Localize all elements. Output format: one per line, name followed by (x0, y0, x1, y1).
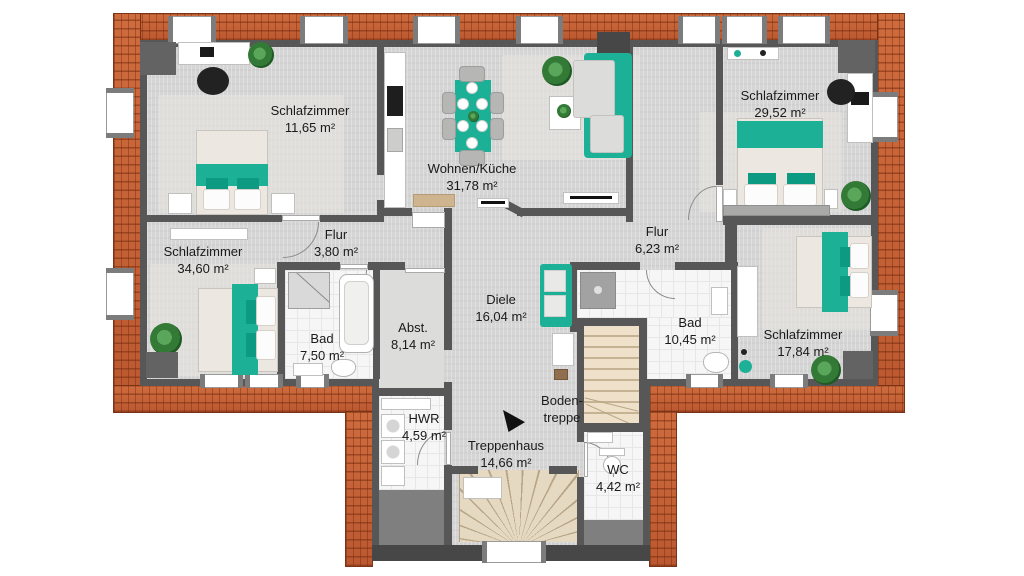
wall-stair-stub-right (549, 466, 577, 474)
room-label-flur-links: Flur 3,80 m² (314, 226, 358, 260)
bed-pillow (783, 184, 817, 206)
window (686, 374, 723, 388)
room-area: 17,84 m² (764, 343, 843, 360)
bed-pillow (256, 330, 276, 360)
room-label-bad-rechts: Bad 10,45 m² (664, 314, 715, 348)
dining-chair (490, 92, 504, 114)
wall-wohnen-diele-b (517, 208, 633, 216)
bed-blanket (822, 232, 848, 312)
plate-icon (476, 98, 488, 110)
kitchen-sink (387, 128, 403, 152)
dresser (723, 205, 830, 216)
room-label-treppenhaus: Treppenhaus 14,66 m² (468, 437, 544, 471)
dining-chair (459, 66, 485, 82)
wall-bed34-right (277, 262, 285, 379)
room-label-abstellraum: Abst. 8,14 m² (391, 319, 435, 353)
closet (838, 40, 875, 73)
wall-flur-bad-a (285, 262, 340, 270)
wall-diele-left-a (444, 208, 452, 350)
window (245, 374, 283, 388)
room-label-schlafzimmer-rechts: Schlafzimmer 17,84 m² (764, 326, 843, 360)
wall-bodentreppe-right (639, 318, 647, 432)
bed-pillow (744, 184, 778, 206)
wall-wohnen-diele-a (384, 208, 412, 216)
wall-kitchen-a (377, 47, 384, 175)
room-area: 8,14 m² (391, 336, 435, 353)
shower-head-icon (594, 286, 602, 294)
wall-bedtl-bottom-a (147, 215, 282, 222)
closet (140, 42, 176, 75)
tv-icon (570, 196, 612, 199)
plant-icon (557, 104, 571, 118)
stair-landing (463, 477, 502, 499)
wall-trepp-wc-b (577, 477, 584, 545)
room-area: 7,50 m² (300, 347, 344, 364)
window (296, 374, 329, 388)
window (413, 16, 460, 44)
door-leaf (405, 268, 445, 273)
floor-plan: Schlafzimmer 11,65 m² Wohnen/Küche 31,78… (0, 0, 1024, 576)
room-area: 34,60 m² (164, 260, 243, 277)
room-label-diele: Diele 16,04 m² (475, 291, 526, 325)
bench-cushion (544, 295, 566, 317)
room-label-bodentreppe: Boden- treppe (541, 392, 583, 426)
bathroom-sink (711, 287, 728, 315)
wc-sink (587, 432, 613, 443)
room-name: Flur (314, 226, 358, 243)
room-name: Bad (664, 314, 715, 331)
window (106, 268, 134, 320)
plate-icon (476, 120, 488, 132)
chimney (597, 32, 630, 53)
door-leaf (716, 186, 723, 222)
window (870, 92, 898, 142)
plant-icon (248, 42, 274, 68)
wall-bodentreppe-top (584, 318, 647, 326)
roof-band-left-wing-bottom (114, 386, 372, 412)
room-name: Abst. (391, 319, 435, 336)
plate-icon (457, 120, 469, 132)
window (678, 16, 720, 44)
wall-diele-left-c (444, 465, 452, 545)
roof-band-right-wing-bottom (650, 386, 904, 412)
plant-icon (150, 323, 182, 355)
window (870, 290, 898, 336)
office-chair (197, 67, 229, 95)
wall-tower-left (372, 379, 379, 553)
roof-band-tower-left (346, 412, 372, 566)
wall-bedtl-bottom-b (320, 215, 384, 222)
shower (288, 272, 330, 309)
bed-pillow (256, 296, 276, 326)
hwr-counter (381, 398, 431, 410)
window (722, 16, 767, 44)
wall-wc-top (584, 423, 643, 430)
bed-pillow (203, 189, 230, 210)
sofa-cushions (573, 60, 615, 118)
sofa-cushions (590, 115, 624, 153)
entry-door (482, 541, 546, 563)
room-label-wc: WC 4,42 m² (596, 461, 640, 495)
dining-chair (442, 118, 456, 140)
door-leaf (340, 264, 368, 269)
room-area: 31,78 m² (428, 177, 517, 194)
window (770, 374, 808, 388)
nightstand (168, 193, 192, 214)
room-name: Flur (635, 223, 679, 240)
room-label-schlafzimmer-tl: Schlafzimmer 11,65 m² (271, 102, 350, 136)
nightstand (271, 193, 295, 214)
tv-icon (481, 201, 505, 204)
decor-icon (734, 50, 741, 57)
room-name: Schlafzimmer (271, 102, 350, 119)
room-area: 10,45 m² (664, 331, 715, 348)
sideboard-wood (413, 194, 455, 207)
room-label-schlafzimmer-links: Schlafzimmer 34,60 m² (164, 243, 243, 277)
wall-trepp-wc-a (577, 432, 584, 442)
decor-icon (739, 360, 752, 373)
window (516, 16, 563, 44)
room-name: Diele (475, 291, 526, 308)
dining-chair (490, 118, 504, 140)
wall-bad7-abst (373, 270, 380, 379)
wall-bad10-top-b (675, 262, 738, 270)
desk (178, 42, 250, 65)
window (778, 16, 830, 44)
wall-hall-bed17 (725, 222, 737, 262)
room-area: 29,52 m² (741, 104, 820, 121)
roof-band-left (114, 14, 140, 412)
door-leaf (446, 432, 451, 465)
terrace-block-left (379, 490, 444, 545)
window (200, 374, 243, 388)
room-label-flur-rechts: Flur 6,23 m² (635, 223, 679, 257)
room-label-wohnen-kueche: Wohnen/Küche 31,78 m² (428, 160, 517, 194)
wall-right-wing-bottom (643, 379, 878, 386)
window (300, 16, 348, 44)
plate-icon (466, 82, 478, 94)
wall-bed29-bottom (723, 215, 878, 225)
table-centerpiece (468, 111, 479, 122)
terrace-block-right (584, 520, 643, 545)
plant-icon (542, 56, 572, 86)
wall-exterior-left (140, 40, 147, 386)
room-name: Schlafzimmer (164, 243, 243, 260)
bathroom-sink (293, 363, 323, 376)
bed-blanket (232, 284, 258, 375)
room-area: 4,42 m² (596, 478, 640, 495)
room-label-schlafzimmer-tr: Schlafzimmer 29,52 m² (741, 87, 820, 121)
room-area: 4,59 m² (402, 427, 446, 444)
bed-blanket (737, 121, 823, 148)
room-area: 6,23 m² (635, 240, 679, 257)
bed-pillow (850, 243, 869, 269)
room-name: Boden- (541, 392, 583, 409)
room-name: Wohnen/Küche (428, 160, 517, 177)
room-label-hwr: HWR 4,59 m² (402, 410, 446, 444)
armchair (843, 351, 873, 379)
wall-flur-bed29 (716, 47, 723, 185)
wall-flur-abst (368, 262, 405, 270)
room-area: 11,65 m² (271, 119, 350, 136)
office-chair (827, 79, 855, 105)
dresser (170, 228, 248, 240)
plant-icon (841, 181, 871, 211)
wall-hwr-top (379, 388, 444, 396)
room-area: 3,80 m² (314, 243, 358, 260)
wall-bad10-top-a (577, 262, 640, 270)
console-table (552, 333, 574, 366)
decor-icon (760, 50, 766, 56)
room-area: 14,66 m² (468, 454, 544, 471)
room-name: Schlafzimmer (764, 326, 843, 343)
roof-band-tower-right (650, 412, 676, 566)
room-name: Schlafzimmer (741, 87, 820, 104)
shelf (381, 466, 405, 486)
window (106, 88, 134, 138)
bed-pillow (234, 189, 261, 210)
cooktop (387, 86, 403, 116)
bed-pillow (850, 272, 869, 298)
wardrobe (737, 266, 758, 337)
decor-icon (741, 349, 747, 355)
armchair (146, 352, 178, 378)
plate-icon (466, 137, 478, 149)
room-label-bad-links: Bad 7,50 m² (300, 330, 344, 364)
door-leaf (282, 215, 320, 221)
plate-icon (457, 98, 469, 110)
bench-cushion (544, 270, 566, 292)
roof-band-right (878, 14, 904, 412)
window (168, 16, 216, 44)
decor-boxes (554, 369, 568, 380)
bathtub-inner (344, 281, 369, 345)
laptop-icon (200, 47, 214, 57)
dining-chair (442, 92, 456, 114)
toilet (703, 352, 729, 373)
door-leaf (412, 212, 445, 228)
room-name-line2: treppe (541, 409, 583, 426)
room-name: WC (596, 461, 640, 478)
room-name: Bad (300, 330, 344, 347)
room-name: HWR (402, 410, 446, 427)
room-area: 16,04 m² (475, 308, 526, 325)
toilet-tank (599, 448, 625, 456)
room-name: Treppenhaus (468, 437, 544, 454)
nightstand (254, 268, 276, 284)
